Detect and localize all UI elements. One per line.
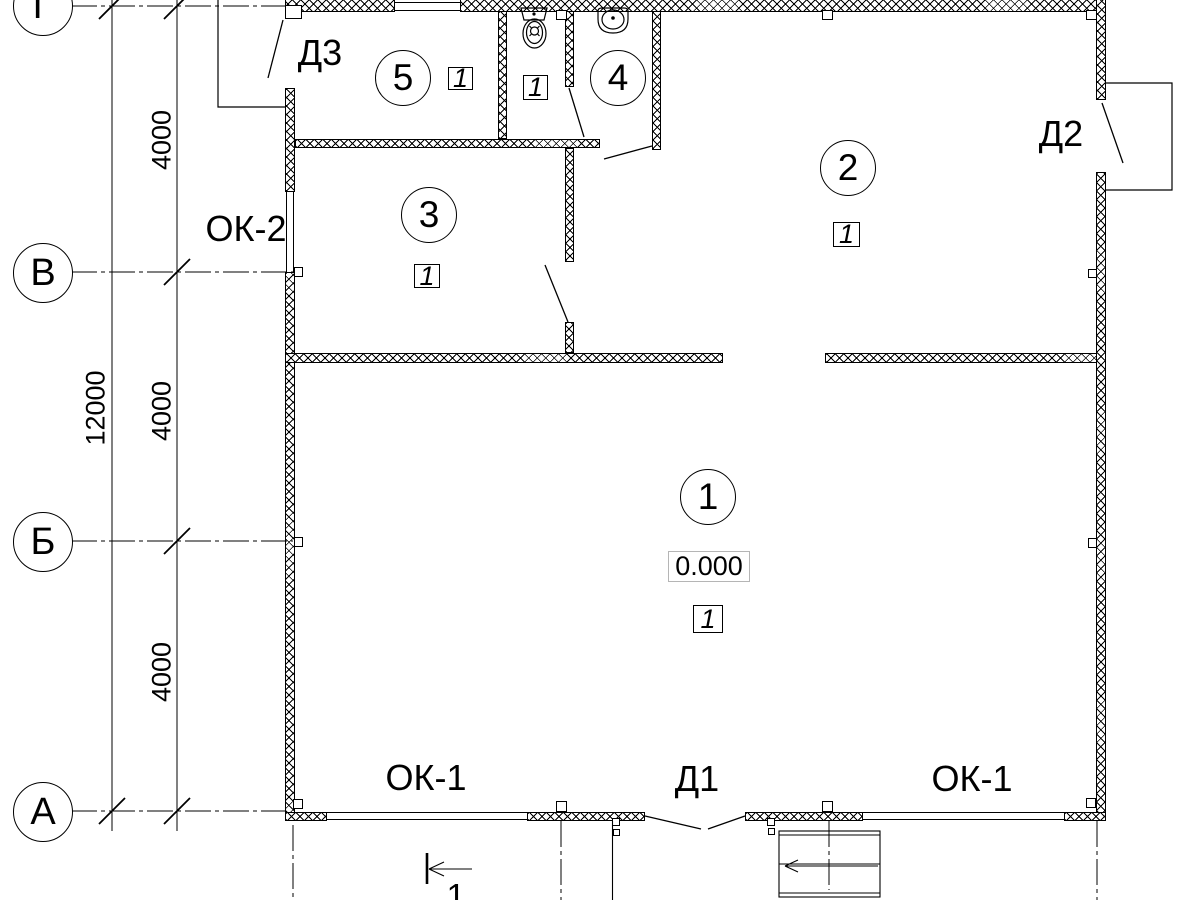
pilaster — [1088, 269, 1097, 278]
pilaster — [1088, 538, 1097, 548]
window-ok1-left — [327, 812, 527, 820]
pilaster — [285, 5, 302, 19]
wall-bottom-1 — [285, 812, 327, 821]
room-circle-3: 3 — [401, 187, 457, 243]
finish-box-room3: 1 — [414, 264, 440, 288]
level-mark: 0.000 — [668, 551, 750, 582]
floor-plan: Г В Б А 4000 4000 4000 12000 5 4 3 2 1 1… — [0, 0, 1200, 900]
window-ok1-right — [863, 812, 1064, 820]
axis-bubble-v: В — [13, 243, 73, 303]
axis-bubble-g: Г — [13, 0, 73, 36]
wall-int-middle-left — [285, 353, 723, 363]
wall-int-room5-south — [295, 139, 600, 148]
room-circle-5: 5 — [375, 50, 431, 106]
room-number: 5 — [393, 57, 414, 99]
wall-int-room3-east-upper — [565, 148, 574, 262]
room-number: 2 — [838, 147, 859, 189]
pilaster — [822, 801, 833, 812]
wall-bottom-2 — [527, 812, 645, 821]
pilaster — [556, 10, 567, 20]
porch-post — [613, 829, 620, 836]
level-value: 0.000 — [675, 551, 743, 582]
porch-post — [612, 818, 620, 826]
door-leaf-d1-left — [645, 816, 701, 829]
finish-box-wc: 1 — [523, 75, 548, 100]
window-top — [395, 0, 460, 11]
wall-bottom-3 — [745, 812, 863, 821]
finish-box-room1: 1 — [693, 605, 723, 633]
finish-number: 1 — [700, 604, 715, 635]
door-leaf-d3 — [268, 20, 283, 78]
dim-segment-2: 4000 — [147, 381, 178, 441]
stairs — [613, 821, 881, 900]
window-label-ok2: ОК-2 — [206, 208, 287, 250]
axis-letter: Г — [33, 0, 54, 28]
room-number: 3 — [419, 194, 440, 236]
pilaster — [1086, 798, 1096, 808]
axis-letter: А — [30, 791, 55, 834]
window-label-ok1-left: ОК-1 — [386, 757, 467, 799]
dim-segment-3: 4000 — [147, 642, 178, 702]
section-label: 1 — [447, 878, 466, 900]
axis-bubble-a: А — [13, 782, 73, 842]
porch-post — [767, 818, 775, 826]
wall-right-upper — [1096, 0, 1106, 100]
room-circle-2: 2 — [820, 140, 876, 196]
porch-d3-outline — [218, 0, 285, 107]
window-label-ok1-right: ОК-1 — [932, 758, 1013, 800]
wall-right-lower — [1096, 172, 1106, 821]
pilaster — [294, 537, 303, 547]
door-label-d1: Д1 — [675, 758, 719, 800]
door-leaf-room3 — [545, 265, 568, 322]
wall-int-room3-east-stub — [565, 322, 574, 353]
room-circle-4: 4 — [590, 50, 646, 106]
wall-int-room5-wc — [498, 11, 507, 139]
pilaster — [1086, 10, 1097, 20]
door-leaf-wc — [569, 88, 584, 137]
door-label-d2: Д2 — [1039, 113, 1083, 155]
axis-letter: В — [30, 252, 55, 295]
pilaster — [294, 267, 303, 277]
wall-int-middle-right — [825, 353, 1097, 363]
finish-box-room5: 1 — [448, 67, 473, 90]
pilaster — [293, 799, 303, 809]
axis-letter: Б — [31, 521, 56, 564]
wall-bottom-4 — [1064, 812, 1106, 821]
window-ok2 — [286, 192, 294, 272]
finish-number: 1 — [839, 219, 854, 250]
wall-left-upper — [285, 88, 295, 192]
room-circle-1: 1 — [680, 469, 736, 525]
finish-number: 1 — [453, 63, 468, 94]
door-label-d3: Д3 — [298, 32, 342, 74]
axis-bubble-b: Б — [13, 512, 73, 572]
porch-d2-outline — [1106, 83, 1172, 190]
linework-overlay — [0, 0, 1200, 900]
finish-box-room2: 1 — [833, 222, 860, 247]
room-number: 4 — [608, 57, 629, 99]
room-number: 1 — [698, 476, 719, 518]
finish-number: 1 — [528, 72, 543, 103]
pilaster — [822, 10, 833, 20]
door-leaf-d1-right — [708, 816, 745, 829]
door-leaf-room4 — [604, 146, 652, 159]
pilaster — [556, 801, 567, 812]
dim-total: 12000 — [81, 370, 112, 445]
finish-number: 1 — [419, 261, 434, 292]
porch-post — [768, 828, 775, 835]
toilet-icon — [521, 8, 547, 48]
wall-int-wc-room4 — [565, 11, 574, 87]
wall-int-room4-room2 — [652, 11, 661, 150]
door-leaf-d2 — [1102, 103, 1123, 163]
dim-segment-1: 4000 — [147, 110, 178, 170]
